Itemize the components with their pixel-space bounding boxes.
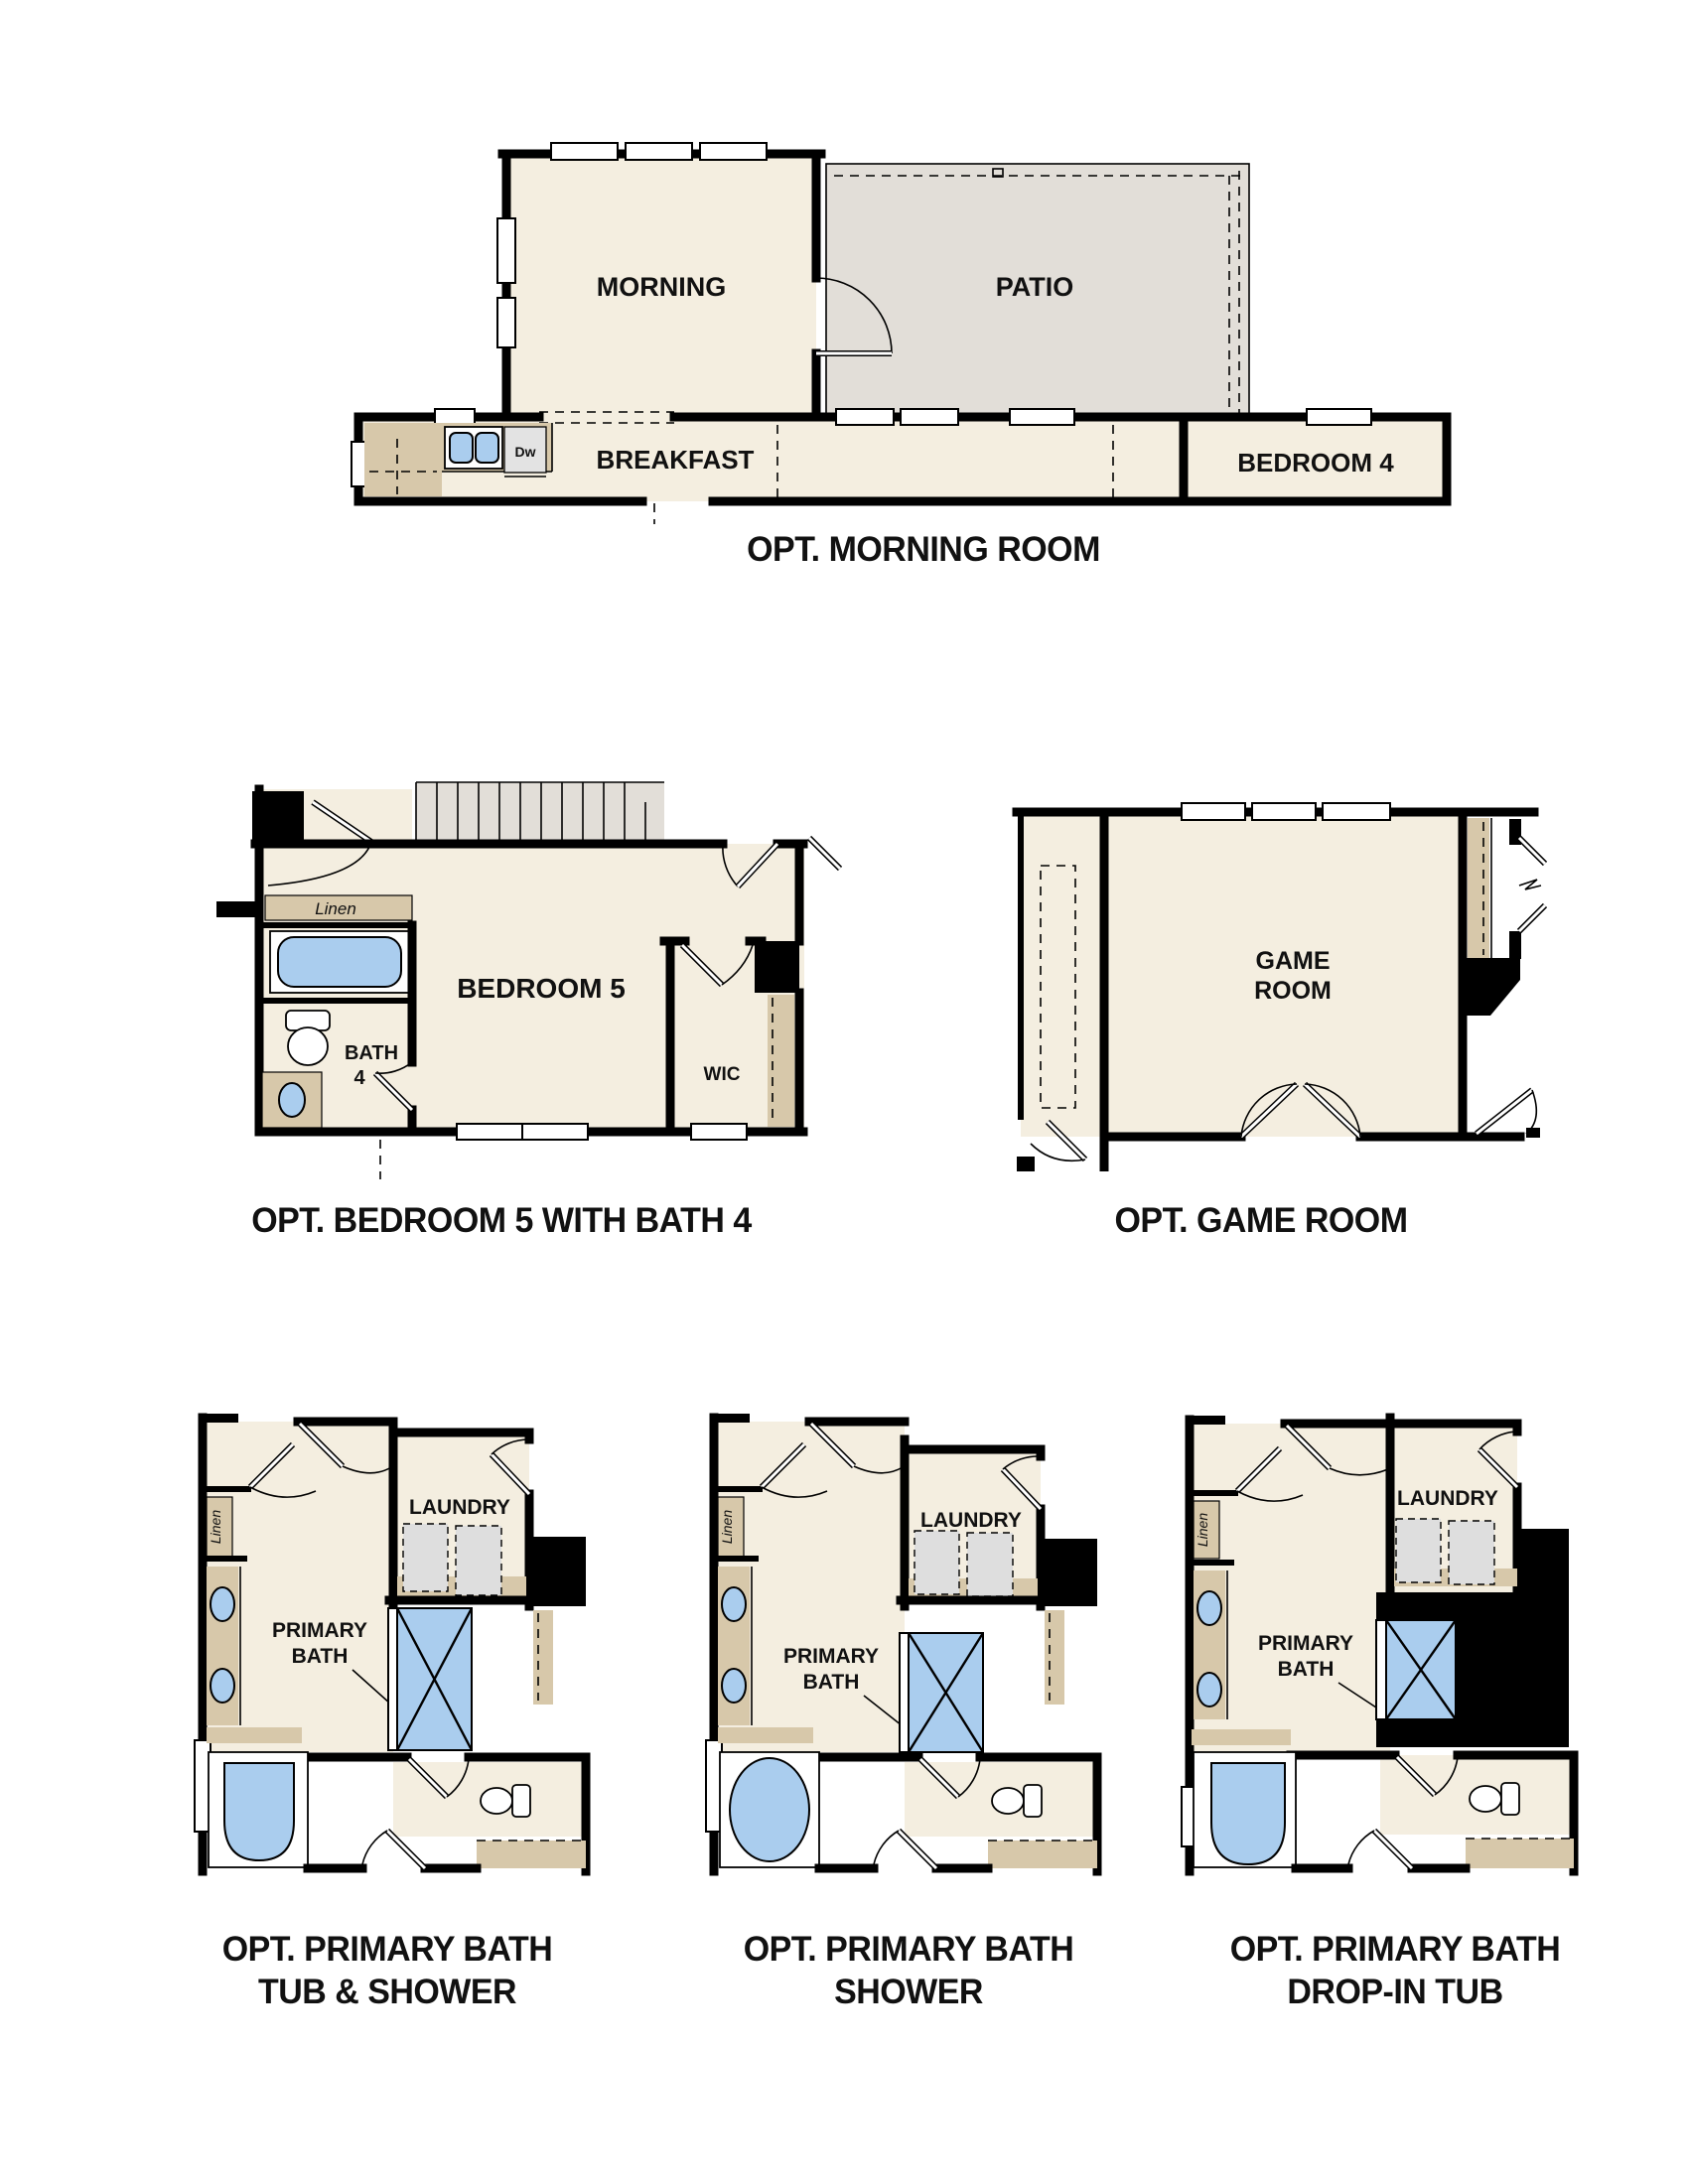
label-dishwasher: Dw <box>515 444 536 460</box>
shower-door <box>388 1608 397 1750</box>
label-linen: Linen <box>208 1510 223 1544</box>
room-label-bath: BATH <box>292 1645 349 1668</box>
label-linen: Linen <box>315 899 356 918</box>
room-label-laundry: LAUNDRY <box>920 1509 1022 1532</box>
sink <box>722 1669 746 1703</box>
room-label-primary: PRIMARY <box>783 1645 879 1668</box>
caption-line2: SHOWER <box>668 1971 1150 2013</box>
caption-bedroom5: OPT. BEDROOM 5 WITH BATH 4 <box>116 1199 887 1242</box>
room-label-room: ROOM <box>1254 977 1332 1005</box>
stairs-area <box>416 782 664 844</box>
room-label-laundry: LAUNDRY <box>1397 1487 1498 1510</box>
bathtub <box>278 937 401 987</box>
caption-line1: OPT. PRIMARY BATH <box>668 1928 1150 1971</box>
shower-door <box>900 1633 909 1752</box>
room-label-bedroom5: BEDROOM 5 <box>457 973 626 1004</box>
caption-line2: DROP-IN TUB <box>1150 1971 1641 2013</box>
caption-line1: OPT. PRIMARY BATH <box>147 1928 629 1971</box>
room-label-bath: BATH <box>1278 1658 1335 1681</box>
sink <box>211 1587 234 1621</box>
caption-line2: TUB & SHOWER <box>147 1971 629 2013</box>
toilet-bowl <box>481 1788 512 1814</box>
room-label-bedroom4: BEDROOM 4 <box>1237 448 1394 478</box>
room-label-laundry: LAUNDRY <box>409 1496 510 1519</box>
dryer <box>456 1526 501 1595</box>
washer <box>914 1531 959 1594</box>
toilet-bowl <box>288 1027 328 1065</box>
label-linen: Linen <box>719 1510 735 1544</box>
toilet-tank <box>512 1785 530 1817</box>
caption-morning-room: OPT. MORNING ROOM <box>442 528 1405 571</box>
floor-plan-game-room: GAME ROOM <box>993 774 1549 1171</box>
toilet-bowl <box>992 1788 1024 1814</box>
sink <box>1197 1673 1221 1706</box>
dryer <box>1449 1521 1494 1584</box>
floor-plan-morning-room: MORNING PATIO BREAKFAST BEDROOM 4 Dw <box>338 129 1509 576</box>
room-label-bath-number: 4 <box>353 1067 365 1089</box>
toilet-bowl <box>1470 1786 1501 1812</box>
floor-plan-options-sheet: MORNING PATIO BREAKFAST BEDROOM 4 Dw OPT… <box>0 0 1688 2184</box>
floor-plan-primary-bath-tub-shower: Linen PRIMARY BATH LAUNDRY <box>149 1410 596 1886</box>
room-label-morning: MORNING <box>597 272 727 302</box>
sink <box>279 1083 305 1117</box>
room-label-bath: BATH <box>345 1042 398 1064</box>
floor-plan-primary-bath-shower: Linen PRIMARY BATH LAUNDRY <box>660 1410 1107 1886</box>
room-label-patio: PATIO <box>996 272 1074 302</box>
caption-primary-bath-dropin: OPT. PRIMARY BATH DROP-IN TUB <box>1150 1928 1641 2013</box>
room-label-primary: PRIMARY <box>1258 1632 1353 1655</box>
floor-plan-primary-bath-dropin-tub: Linen PRIMARY BATH LAUNDRY <box>1132 1410 1589 1886</box>
sink <box>1197 1591 1221 1625</box>
room-label-game: GAME <box>1256 947 1331 975</box>
bathtub-oval <box>730 1758 809 1861</box>
sink <box>722 1587 746 1621</box>
washer <box>403 1524 448 1591</box>
bathtub <box>224 1763 294 1860</box>
dryer <box>967 1533 1013 1596</box>
caption-game-room: OPT. GAME ROOM <box>972 1199 1550 1242</box>
label-linen: Linen <box>1195 1513 1210 1547</box>
toilet-tank <box>1024 1785 1042 1817</box>
shower-door <box>1376 1620 1386 1719</box>
floor-plan-bedroom5-bath4: Linen BATH 4 BEDROOM 5 WIC <box>159 774 854 1191</box>
toilet-tank <box>1501 1783 1519 1815</box>
caption-line1: OPT. PRIMARY BATH <box>1150 1928 1641 1971</box>
room-label-breakfast: BREAKFAST <box>597 445 755 475</box>
caption-primary-bath-tub-shower: OPT. PRIMARY BATH TUB & SHOWER <box>147 1928 629 2013</box>
room-label-bath: BATH <box>803 1671 860 1694</box>
washer <box>1396 1519 1441 1582</box>
caption-primary-bath-shower: OPT. PRIMARY BATH SHOWER <box>668 1928 1150 2013</box>
bathtub-dropin <box>1211 1763 1285 1864</box>
room-label-primary: PRIMARY <box>272 1619 367 1642</box>
sink <box>211 1669 234 1703</box>
room-label-wic: WIC <box>704 1064 741 1085</box>
